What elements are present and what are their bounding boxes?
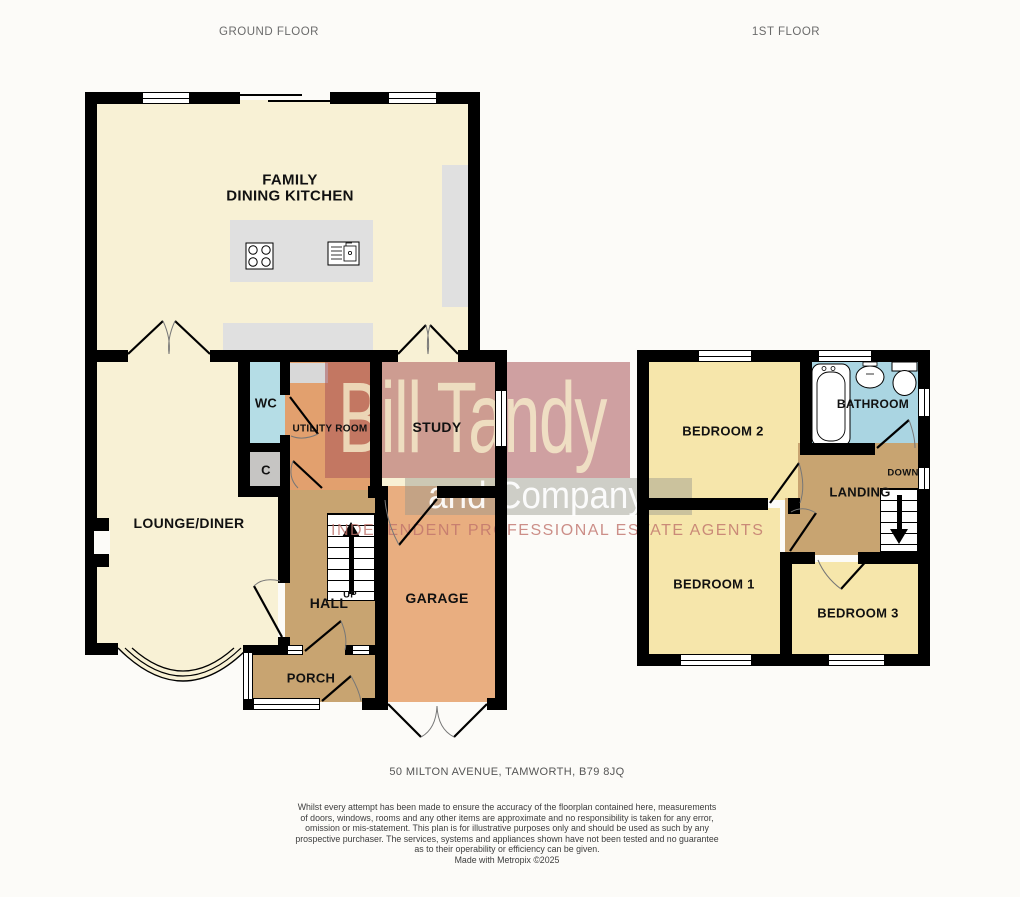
disclaimer-line: Whilst every attempt has been made to en… bbox=[187, 802, 827, 813]
property-address: 50 MILTON AVENUE, TAMWORTH, B79 8JQ bbox=[389, 766, 624, 778]
disclaimer-line: prospective purchaser. The services, sys… bbox=[187, 834, 827, 845]
label-porch: PORCH bbox=[287, 671, 335, 686]
disclaimer-line: as to their operability or efficiency ca… bbox=[187, 844, 827, 855]
disclaimer-text: Whilst every attempt has been made to en… bbox=[187, 802, 827, 866]
door-leaves bbox=[128, 321, 909, 737]
label-kitchen-line1: FAMILY bbox=[262, 172, 317, 189]
label-hall-up: UP bbox=[343, 590, 357, 601]
label-study: STUDY bbox=[413, 419, 462, 435]
label-landing-down: DOWN bbox=[887, 468, 918, 479]
label-wc: WC bbox=[255, 396, 277, 411]
label-lounge: LOUNGE/DINER bbox=[134, 515, 245, 531]
floorplan-page: GROUND FLOOR 1ST FLOOR bbox=[0, 0, 1020, 897]
label-kitchen-line2: DINING KITCHEN bbox=[226, 188, 354, 205]
label-garage: GARAGE bbox=[405, 590, 468, 606]
disclaimer-line: omission or mis-statement. This plan is … bbox=[187, 823, 827, 834]
disclaimer-line: of doors, windows, rooms and any other i… bbox=[187, 813, 827, 824]
label-landing: LANDING bbox=[829, 485, 890, 500]
label-bathroom: BATHROOM bbox=[837, 397, 909, 411]
label-utility: UTILITY ROOM bbox=[292, 424, 367, 435]
label-bedroom2: BEDROOM 2 bbox=[682, 424, 763, 439]
label-cupboard: C bbox=[261, 463, 271, 478]
label-bedroom3: BEDROOM 3 bbox=[817, 606, 898, 621]
label-bedroom1: BEDROOM 1 bbox=[673, 577, 754, 592]
metropix-credit: Made with Metropix ©2025 bbox=[187, 855, 827, 866]
doors-layer bbox=[0, 0, 1020, 897]
door-arcs bbox=[163, 321, 915, 737]
